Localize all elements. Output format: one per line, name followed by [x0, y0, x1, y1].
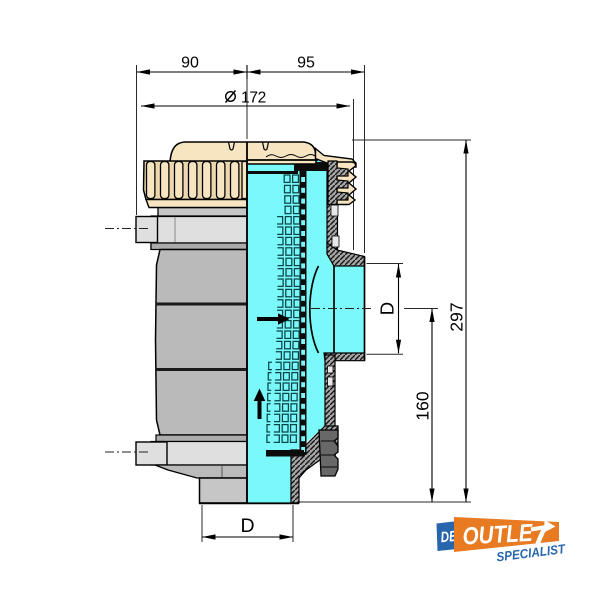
svg-text:D: D: [377, 302, 398, 315]
svg-text:297: 297: [447, 302, 467, 331]
svg-text:D: D: [240, 515, 254, 537]
svg-text:90: 90: [181, 55, 199, 72]
svg-text:160: 160: [413, 391, 433, 420]
svg-text:95: 95: [297, 55, 315, 72]
svg-text:172: 172: [241, 90, 266, 107]
